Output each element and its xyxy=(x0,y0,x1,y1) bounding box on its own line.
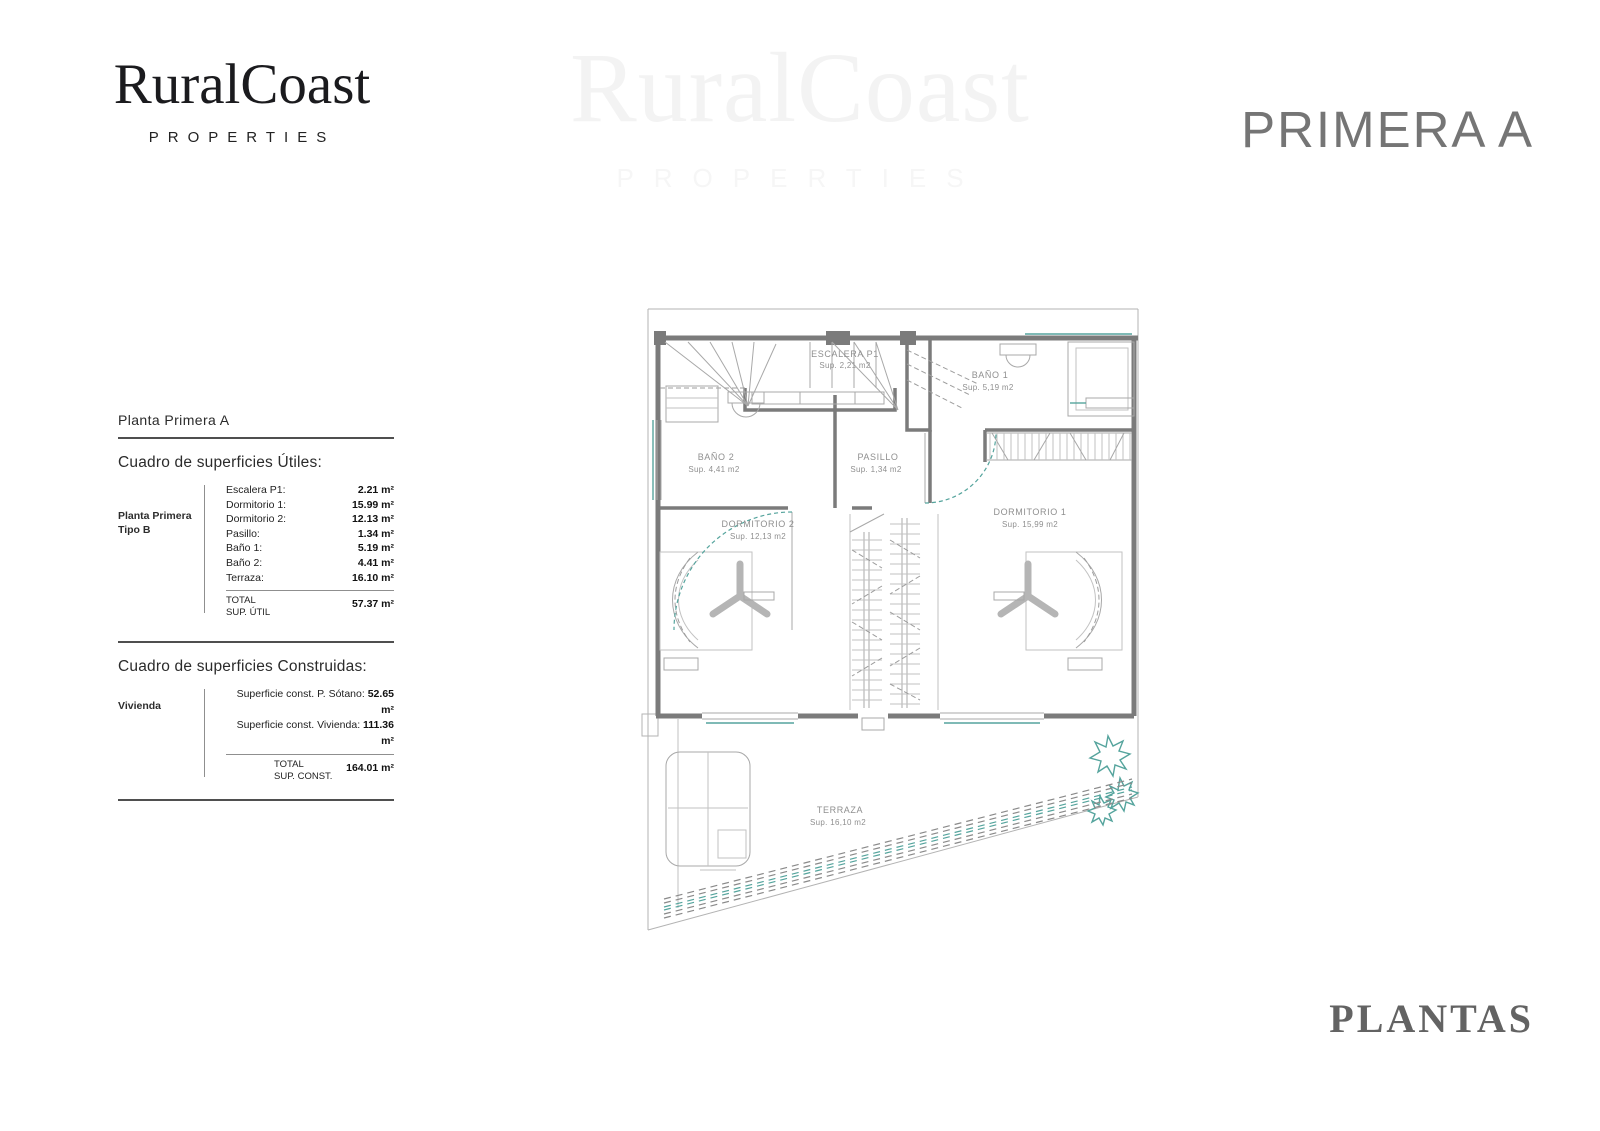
utiles-total-row: TOTAL SUP. ÚTIL 57.37 m² xyxy=(226,595,394,619)
svg-text:Sup. 4,41 m2: Sup. 4,41 m2 xyxy=(688,465,739,474)
table-row: Baño 1:5.19 m² xyxy=(226,541,394,556)
room-label-escalera: ESCALERA P1 xyxy=(811,349,879,359)
terrace xyxy=(666,718,750,908)
watermark-tagline: PROPERTIES xyxy=(520,163,1080,194)
room-label-pasillo: PASILLO xyxy=(857,452,898,462)
table-row: Escalera P1:2.21 m² xyxy=(226,483,394,498)
table-row: Pasillo:1.34 m² xyxy=(226,527,394,542)
table-row: Baño 2:4.41 m² xyxy=(226,556,394,571)
center-wardrobe xyxy=(850,514,938,710)
plan-title: Planta Primera A xyxy=(118,412,394,428)
construidas-group-label: Vivienda xyxy=(118,687,204,783)
watermark: RuralCoast PROPERTIES xyxy=(520,30,1080,194)
table-row: Terraza:16.10 m² xyxy=(226,571,394,586)
divider xyxy=(204,485,205,613)
terrace-railing xyxy=(664,779,1132,918)
construidas-table: Vivienda Superficie const. P. Sótano: 52… xyxy=(118,687,394,783)
watermark-logo: RuralCoast xyxy=(520,30,1080,145)
table-row: Superficie const. P. Sótano: 52.65 m² xyxy=(226,687,394,718)
divider xyxy=(226,590,394,591)
divider xyxy=(226,754,394,755)
utiles-heading: Cuadro de superficies Útiles: xyxy=(118,454,394,472)
room-label-dormitorio1: DORMITORIO 1 xyxy=(993,507,1066,517)
construidas-total-row: TOTAL SUP. CONST. 164.01 m² xyxy=(226,759,394,783)
divider xyxy=(118,437,394,439)
utiles-table: Planta Primera Tipo B Escalera P1:2.21 m… xyxy=(118,483,394,619)
svg-text:Sup. 16,10 m2: Sup. 16,10 m2 xyxy=(810,818,866,827)
bathroom1-fixtures xyxy=(1000,342,1134,416)
table-row: Dormitorio 2:12.13 m² xyxy=(226,512,394,527)
svg-text:Sup. 1,34 m2: Sup. 1,34 m2 xyxy=(850,465,901,474)
utiles-group-label: Planta Primera Tipo B xyxy=(118,483,204,619)
construidas-total-value: 164.01 m² xyxy=(346,759,394,783)
table-row: Superficie const. Vivienda: 111.36 m² xyxy=(226,718,394,749)
svg-text:Sup. 5,19 m2: Sup. 5,19 m2 xyxy=(962,383,1013,392)
bedroom2-furniture xyxy=(660,552,774,670)
brand-logo: RuralCoast PROPERTIES xyxy=(92,52,392,146)
plant-icon xyxy=(1088,736,1138,825)
divider xyxy=(118,799,394,801)
footer-title: PLANTAS xyxy=(1329,995,1534,1042)
room-label-bano2: BAÑO 2 xyxy=(698,452,735,462)
bedroom1-furniture xyxy=(994,552,1122,670)
page-title: PRIMERA A xyxy=(1241,100,1534,159)
wardrobe-hatch xyxy=(986,433,1132,460)
table-row: Dormitorio 1:15.99 m² xyxy=(226,498,394,513)
divider xyxy=(118,641,394,643)
room-label-dormitorio2: DORMITORIO 2 xyxy=(721,519,794,529)
construidas-heading: Cuadro de superficies Construidas: xyxy=(118,658,394,676)
divider xyxy=(204,689,205,777)
room-label-bano1: BAÑO 1 xyxy=(972,370,1009,380)
brand-name: RuralCoast xyxy=(92,52,392,117)
floor-plan: ESCALERA P1 Sup. 2,21 m2 BAÑO 1 Sup. 5,1… xyxy=(640,300,1140,940)
brand-tagline: PROPERTIES xyxy=(92,129,392,146)
utiles-total-value: 57.37 m² xyxy=(352,595,394,619)
svg-text:Sup. 15,99 m2: Sup. 15,99 m2 xyxy=(1002,520,1058,529)
surfaces-panel: Planta Primera A Cuadro de superficies Ú… xyxy=(118,412,394,801)
svg-text:Sup. 12,13 m2: Sup. 12,13 m2 xyxy=(730,532,786,541)
svg-text:Sup. 2,21 m2: Sup. 2,21 m2 xyxy=(819,361,870,370)
room-label-terraza: TERRAZA xyxy=(817,805,863,815)
